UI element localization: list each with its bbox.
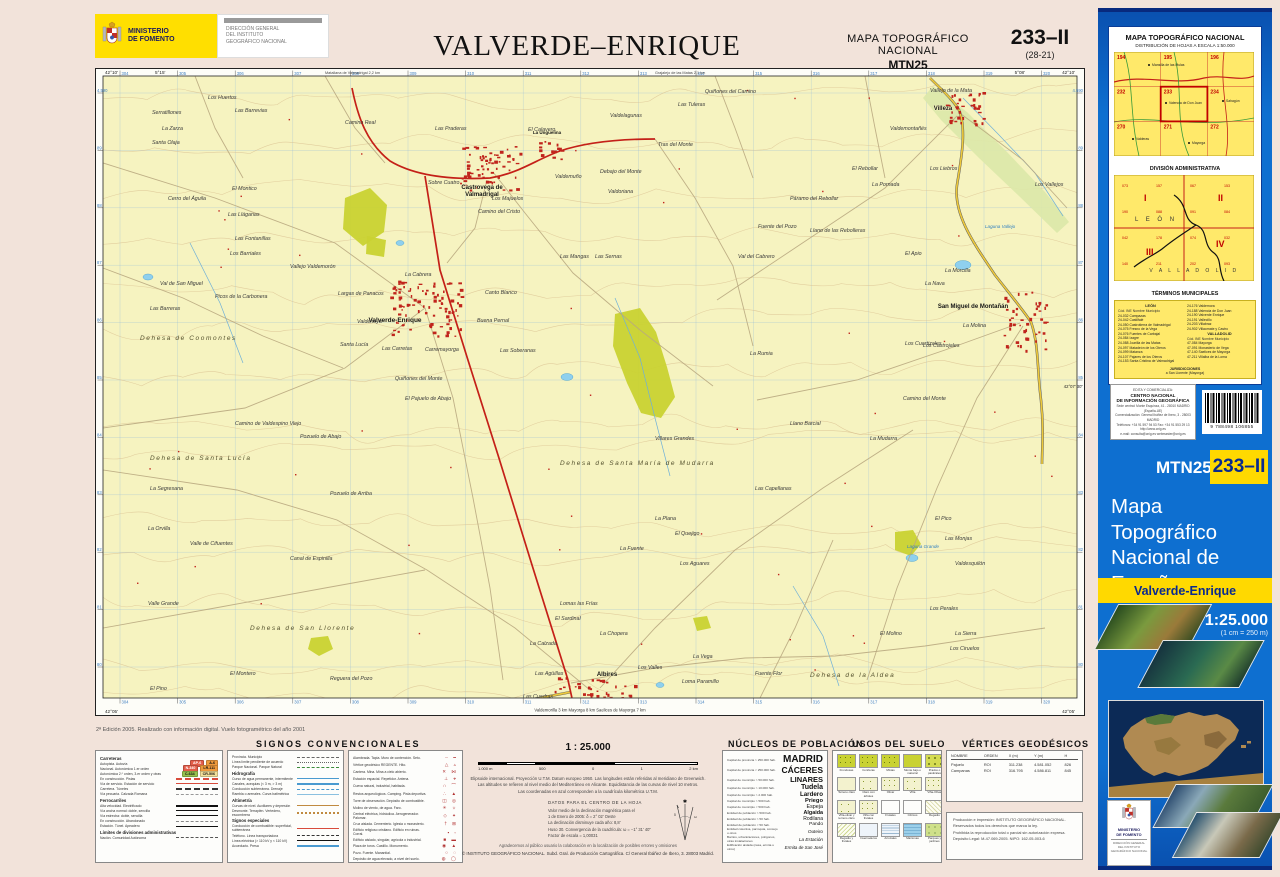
svg-text:V A L L A D O L I D: V A L L A D O L I D bbox=[1149, 268, 1238, 274]
svg-text:La Vega: La Vega bbox=[693, 654, 713, 660]
svg-text:5°08': 5°08' bbox=[1015, 70, 1026, 75]
population-row: Capital de municipio > 10.000 hab.Tudela bbox=[727, 784, 823, 791]
svg-text:Los Liebros: Los Liebros bbox=[930, 166, 958, 172]
svg-text:La Pornada: La Pornada bbox=[872, 182, 899, 188]
legend-header: Límites de divisiones administrativas bbox=[100, 830, 218, 835]
svg-text:088: 088 bbox=[1156, 210, 1162, 214]
svg-text:317: 317 bbox=[870, 71, 878, 76]
svg-text:Dehesa de San Llorente: Dehesa de San Llorente bbox=[250, 625, 355, 632]
municipal-terms-box: LEÓNCód. INE Nombre Municipio24-032 Camp… bbox=[1114, 300, 1256, 379]
svg-text:Dehesa de Coomontes: Dehesa de Coomontes bbox=[140, 335, 237, 342]
sheet-number-block: 233–II (28-21) bbox=[1004, 26, 1076, 60]
svg-text:310: 310 bbox=[467, 71, 475, 76]
svg-text:✱: ✱ bbox=[683, 799, 687, 805]
svg-text:Llano Barcial: Llano Barcial bbox=[790, 421, 821, 427]
svg-text:Los Castrojales: Los Castrojales bbox=[923, 343, 960, 349]
legend-header: Altimetría bbox=[232, 798, 339, 803]
svg-text:Val del Cabrero: Val del Cabrero bbox=[738, 254, 775, 260]
division-title: DIVISIÓN ADMINISTRATIVA bbox=[1114, 166, 1256, 172]
landuse-cell: Frondosas bbox=[837, 754, 856, 775]
landuse-swatch bbox=[903, 777, 922, 791]
landuse-swatch bbox=[859, 800, 878, 814]
legend-row: Vértice geodésico REGENTE. Hito.△ ▵ bbox=[353, 762, 458, 768]
sidebar-panel-title: MAPA TOPOGRÁFICO NACIONAL bbox=[1114, 33, 1256, 42]
svg-text:Quiñones del Monte: Quiñones del Monte bbox=[395, 376, 442, 382]
svg-text:190: 190 bbox=[1122, 210, 1128, 214]
landuse-swatch bbox=[837, 777, 856, 791]
svg-text:Lomas las Frías: Lomas las Frías bbox=[560, 601, 598, 607]
series-title-line: Topográfico bbox=[1111, 520, 1272, 546]
svg-text:320: 320 bbox=[1043, 700, 1051, 705]
population-sample-name: La Estación bbox=[799, 837, 823, 842]
svg-text:Dehesa de la Aldea: Dehesa de la Aldea bbox=[810, 672, 895, 679]
scale-bar-label: 500 bbox=[539, 766, 546, 771]
terminos-title: TÉRMINOS MUNICIPALES bbox=[1114, 291, 1256, 297]
population-row: Edificación aislada (casa, ermita u otro… bbox=[727, 843, 823, 851]
population-sample-name: Tudela bbox=[801, 784, 823, 791]
svg-text:Picos de la Carbonera: Picos de la Carbonera bbox=[215, 294, 267, 300]
landuse-label: Parques y jardines bbox=[925, 837, 942, 843]
svg-text:Los Perales: Los Perales bbox=[930, 606, 958, 612]
sheet-subnumber: (28-21) bbox=[1004, 50, 1076, 60]
svg-text:306: 306 bbox=[237, 71, 245, 76]
svg-text:Las Barreras: Las Barreras bbox=[150, 306, 181, 312]
svg-text:Santa Olaja: Santa Olaja bbox=[152, 140, 180, 146]
svg-text:89: 89 bbox=[1078, 145, 1083, 150]
legend-symbol-icons: ◇ ✦ bbox=[428, 813, 458, 819]
svg-text:233: 233 bbox=[1164, 90, 1173, 96]
municipio-item: Cód. INE Nombre Municipio bbox=[1118, 309, 1183, 313]
dg-ign-bar bbox=[224, 18, 322, 23]
svg-text:074: 074 bbox=[1190, 236, 1196, 240]
legend-row: Canales, acequias (< 3 m, > 3 m) bbox=[232, 782, 339, 786]
svg-text:La Sierra: La Sierra bbox=[955, 631, 977, 637]
legend-row: Provincia. Municipio bbox=[232, 755, 339, 759]
svg-text:Valdoriana: Valdoriana bbox=[608, 189, 633, 195]
svg-text:232: 232 bbox=[1117, 90, 1126, 96]
svg-text:Los Valles: Los Valles bbox=[638, 665, 663, 671]
svg-text:El Pico: El Pico bbox=[935, 516, 952, 522]
scale-bar-label: 1.000 m bbox=[478, 766, 492, 771]
svg-text:307: 307 bbox=[294, 71, 302, 76]
legend-row: Curvas de nivel. Auxiliares y depresión bbox=[232, 804, 339, 808]
svg-text:304: 304 bbox=[122, 700, 130, 705]
svg-text:Páramo del Rebollar: Páramo del Rebollar bbox=[790, 196, 839, 202]
svg-text:Dehesa de Santa María de Mudar: Dehesa de Santa María de Mudarra bbox=[560, 460, 715, 467]
svg-text:Tras del Monte: Tras del Monte bbox=[658, 142, 693, 148]
legend-symbol-icons: ■ ▬ bbox=[428, 837, 458, 842]
svg-text:311: 311 bbox=[525, 71, 532, 76]
svg-text:234: 234 bbox=[1210, 90, 1219, 96]
svg-text:La Zarza: La Zarza bbox=[162, 126, 183, 132]
vertices-cell: 311.238 bbox=[1009, 760, 1034, 767]
svg-text:88: 88 bbox=[1078, 203, 1083, 208]
svg-text:318: 318 bbox=[928, 700, 936, 705]
svg-text:89: 89 bbox=[97, 145, 102, 150]
legend-header: Signos especiales bbox=[232, 818, 339, 823]
svg-text:La Nava: La Nava bbox=[925, 281, 945, 287]
svg-text:Largas de Panacos: Largas de Panacos bbox=[338, 291, 384, 297]
landuse-cell: Marismas bbox=[903, 823, 922, 844]
svg-text:Los Barriales: Los Barriales bbox=[230, 251, 261, 257]
legend-row: Vía ancha normal: doble, sencilla bbox=[100, 809, 218, 813]
series-title-line: Mapa bbox=[1111, 494, 1272, 520]
municipio-item: Cód. INE Nombre Municipio bbox=[1187, 337, 1252, 341]
svg-text:Los Vallejos: Los Vallejos bbox=[1035, 182, 1064, 188]
legend-row: En construcción. Pistas bbox=[100, 777, 218, 781]
landuse-swatch bbox=[881, 823, 900, 837]
svg-text:316: 316 bbox=[813, 71, 821, 76]
landuse-cell: Arrozales bbox=[881, 823, 900, 844]
landuse-label: Coníferas bbox=[859, 769, 878, 772]
sheet-title: VALVERDE–ENRIQUE bbox=[402, 30, 772, 63]
legend-row: Línea eléctrica (> 110 kV y < 110 kV) bbox=[232, 839, 339, 843]
svg-text:83: 83 bbox=[1078, 490, 1083, 495]
svg-text:42°05': 42°05' bbox=[1062, 709, 1075, 714]
legend-symbol-icons: ┄ ━ bbox=[428, 755, 458, 761]
svg-text:ω: ω bbox=[694, 815, 697, 819]
svg-text:42°07' 30'': 42°07' 30'' bbox=[1064, 384, 1083, 389]
ministry-yellow-box: MINISTERIO DE FOMENTO bbox=[95, 14, 217, 58]
landuse-swatch bbox=[837, 800, 856, 814]
svg-text:Los Aguares: Los Aguares bbox=[680, 561, 710, 567]
svg-text:178: 178 bbox=[1156, 236, 1162, 240]
svg-text:Cerro del Águila: Cerro del Águila bbox=[168, 195, 206, 202]
municipio-item: 47-211 Villalba de la Loma bbox=[1187, 355, 1252, 360]
population-sample-name: Outeiro bbox=[808, 829, 823, 834]
population-sample-name: Pando bbox=[809, 822, 823, 827]
legend-row: Cantera. Mina. Mina a cielo abierto.✕ ⋈ bbox=[353, 769, 458, 775]
landuse-label: Monte bajo o matorral bbox=[903, 769, 922, 775]
landuse-cell: Viña con frutales bbox=[859, 800, 878, 821]
svg-text:317: 317 bbox=[870, 700, 878, 705]
landuse-swatch bbox=[925, 777, 942, 791]
landuse-swatch bbox=[837, 754, 856, 768]
svg-text:83: 83 bbox=[97, 490, 102, 495]
svg-text:El Quejigo: El Quejigo bbox=[675, 531, 699, 537]
svg-text:Valle de Cifuentes: Valle de Cifuentes bbox=[190, 541, 233, 547]
svg-text:El Montero: El Montero bbox=[230, 671, 256, 677]
svg-text:Las Carretas: Las Carretas bbox=[382, 346, 413, 352]
svg-text:San Miguel de Montañán: San Miguel de Montañán bbox=[938, 304, 1009, 310]
svg-text:Las Soberanas: Las Soberanas bbox=[500, 348, 536, 354]
topographic-map: Castrovega deValmadrigalLa UnguelinaVill… bbox=[95, 68, 1085, 716]
svg-text:La Orvilla: La Orvilla bbox=[148, 526, 170, 532]
cnig-box: EDITA Y COMERCIALIZA: CENTRO NACIONAL DE… bbox=[1110, 384, 1196, 440]
svg-text:81: 81 bbox=[1078, 605, 1083, 610]
legend-symbol-icons: ◍ ◯ bbox=[428, 856, 458, 862]
svg-text:El Calavero: El Calavero bbox=[528, 127, 555, 133]
svg-text:093: 093 bbox=[1224, 262, 1230, 266]
svg-text:Vallejo Valdemorón: Vallejo Valdemorón bbox=[290, 264, 336, 270]
landuse-cell: Parques y jardines bbox=[925, 823, 942, 844]
landuse-cell: Viña bbox=[903, 777, 922, 798]
svg-text:318: 318 bbox=[928, 71, 936, 76]
svg-text:202: 202 bbox=[1190, 262, 1196, 266]
svg-text:42°10': 42°10' bbox=[1062, 70, 1075, 75]
svg-text:140: 140 bbox=[1122, 262, 1128, 266]
svg-text:La Calzada: La Calzada bbox=[530, 641, 557, 647]
legend-symbol-icons: ◫ ◎ bbox=[428, 798, 458, 804]
svg-text:067: 067 bbox=[1190, 184, 1196, 188]
landuse-swatch bbox=[925, 754, 942, 768]
svg-text:L E Ó N: L E Ó N bbox=[1135, 216, 1177, 223]
spain-coat-of-arms-icon bbox=[101, 21, 123, 52]
svg-text:El Molino: El Molino bbox=[880, 631, 902, 637]
legend-row: Depósito de agua elevado, a nivel del su… bbox=[353, 856, 458, 862]
svg-text:Mansilla de las Mulas: Mansilla de las Mulas bbox=[1152, 63, 1185, 67]
legend-row: Rambla o arenales. Curva batimétrica bbox=[232, 792, 339, 796]
legend-symbol-icons: ✕ ⋈ bbox=[428, 769, 458, 775]
svg-text:Las Mangas: Las Mangas bbox=[560, 254, 589, 260]
svg-text:Los Huertos: Los Huertos bbox=[208, 95, 237, 101]
svg-text:270: 270 bbox=[1117, 124, 1126, 130]
svg-text:211: 211 bbox=[1156, 262, 1162, 266]
legend-row: Conducción de combustible: superficial, … bbox=[232, 824, 339, 832]
vertices-cell: 845 bbox=[1065, 767, 1078, 774]
svg-text:4.590: 4.590 bbox=[97, 88, 108, 93]
sidebar-mtn25: MTN25 bbox=[1156, 458, 1212, 478]
svg-text:Valencia de Don Juan: Valencia de Don Juan bbox=[1169, 101, 1202, 105]
svg-text:320: 320 bbox=[1043, 71, 1051, 76]
population-row: Entidad colectiva, parroquia, concejo u … bbox=[727, 827, 823, 835]
vertices-cell: 826 bbox=[1065, 760, 1078, 767]
landuse-cell: Frutales bbox=[881, 800, 900, 821]
sidebar-sheet-name: Valverde-Enrique bbox=[1098, 578, 1272, 603]
svg-text:Pozuelo de Arriba: Pozuelo de Arriba bbox=[330, 491, 372, 497]
svg-text:Santa Lucía: Santa Lucía bbox=[340, 342, 368, 348]
legend-symbol-icons: ✳ ☼ bbox=[428, 805, 458, 811]
svg-text:80: 80 bbox=[97, 662, 102, 667]
vertices-cell: 4.586.811 bbox=[1034, 767, 1064, 774]
projection-note-line: Las altitudes se refieren al nivel medio… bbox=[448, 782, 728, 788]
svg-text:157: 157 bbox=[1156, 184, 1162, 188]
sidebar-panel-subtitle: DISTRIBUCIÓN DE HOJAS A ESCALA 1:50.000 bbox=[1114, 43, 1256, 48]
svg-text:Debajo del Monte: Debajo del Monte bbox=[600, 169, 642, 175]
legend-row: Alta velocidad. Electrificado bbox=[100, 804, 218, 808]
svg-text:195: 195 bbox=[1164, 55, 1173, 61]
svg-text:Valdelagunas: Valdelagunas bbox=[610, 113, 642, 119]
svg-text:5°15': 5°15' bbox=[155, 70, 166, 75]
legend-row: Edificio religioso cristiano. Edificio e… bbox=[353, 828, 458, 836]
svg-text:196: 196 bbox=[1210, 55, 1219, 61]
landuse-cell: Prados o pastizales bbox=[925, 754, 942, 775]
landuse-label: Viña con frutales bbox=[859, 814, 878, 820]
legend-row: Carretera. Túneles bbox=[100, 787, 218, 791]
population-sample-name: Ermita de San José bbox=[785, 845, 823, 850]
svg-text:Las Agüillas: Las Agüillas bbox=[535, 671, 564, 677]
dg-ign-box: DIRECCIÓN GENERAL DEL INSTITUTO GEOGRÁFI… bbox=[217, 14, 329, 58]
svg-text:315: 315 bbox=[755, 71, 763, 76]
cnig-email: e-mail: consulta@cnig.es webmaster@cnig.… bbox=[1115, 432, 1191, 437]
landuse-swatch bbox=[859, 754, 878, 768]
legend-row: Vía pecuaria. Calzada Romana bbox=[100, 792, 218, 796]
municipio-item: LEÓN bbox=[1118, 304, 1183, 308]
landuse-cell: Olivar bbox=[881, 777, 900, 798]
legend-vertices-box: NOMBREORDENX (m)Y (m)HPajueloROI311.2384… bbox=[946, 750, 1083, 802]
series-name: MAPA TOPOGRÁFICO NACIONAL bbox=[822, 33, 994, 57]
svg-text:Serratillones: Serratillones bbox=[152, 110, 182, 116]
ministry-name: MINISTERIO DE FOMENTO bbox=[128, 28, 175, 44]
svg-text:305: 305 bbox=[179, 71, 187, 76]
edition-note: 2ª Edición 2005. Realizado con informaci… bbox=[96, 727, 305, 733]
barcode-number: 9 788498 106855 bbox=[1205, 424, 1259, 429]
svg-text:87: 87 bbox=[1078, 260, 1083, 265]
legend-header: Hidrografía bbox=[232, 771, 339, 776]
legend-row: Cruz aislada. Cementerio. Iglesia o mona… bbox=[353, 821, 458, 827]
production-line: Depósito Legal: M-47.069-2005. NIPO: 162… bbox=[953, 836, 1076, 842]
ign-copyright: © INSTITUTO GEOGRÁFICO NACIONAL. Subd. G… bbox=[440, 851, 736, 856]
svg-text:La Mudarra: La Mudarra bbox=[870, 436, 897, 442]
svg-text:Reguera del Pozo: Reguera del Pozo bbox=[330, 676, 372, 682]
declination-diagram: ✱ δ ω bbox=[668, 798, 702, 844]
legend-row: Desmonte. Terraplén. Vertedero, escombre… bbox=[232, 809, 339, 817]
svg-text:84: 84 bbox=[97, 432, 102, 437]
svg-text:85: 85 bbox=[97, 375, 102, 380]
legend-row: En construcción. Abandonado bbox=[100, 819, 218, 823]
landuse-swatch bbox=[881, 800, 900, 814]
landuse-label: Regadío bbox=[925, 814, 942, 817]
vertices-cell: 4.581.052 bbox=[1034, 760, 1064, 767]
svg-text:315: 315 bbox=[755, 700, 763, 705]
landuse-label: Invernaderos bbox=[859, 837, 878, 840]
legend-population-box: Capital de provincia > 250.000 hab.MADRI… bbox=[722, 750, 828, 863]
legend-row: Vía de servicio. Estación de servicio bbox=[100, 782, 218, 786]
svg-text:313: 313 bbox=[640, 700, 648, 705]
legend-row: Plaza de toros. Castillo. Monumento.◉ ▲ bbox=[353, 843, 458, 849]
svg-text:82: 82 bbox=[97, 547, 102, 552]
landuse-swatch bbox=[925, 823, 942, 837]
landuse-label: Regadío y frutales bbox=[837, 837, 856, 843]
svg-text:306: 306 bbox=[237, 700, 245, 705]
svg-text:194: 194 bbox=[1117, 55, 1126, 61]
landuse-cell: Regadío bbox=[925, 800, 942, 821]
svg-text:310: 310 bbox=[467, 700, 475, 705]
svg-text:La Molina: La Molina bbox=[963, 323, 986, 329]
legend-row: Edificio aislado, singular, agrícola o i… bbox=[353, 837, 458, 842]
svg-text:Val de San Miguel: Val de San Miguel bbox=[160, 281, 204, 287]
legend-row: Torre de observación. Depósito de combus… bbox=[353, 798, 458, 804]
landuse-cell: Claro con árboles bbox=[859, 777, 878, 798]
scale-title: 1 : 25.000 bbox=[468, 742, 708, 753]
svg-text:312: 312 bbox=[582, 700, 590, 705]
svg-text:Las Fontanillas: Las Fontanillas bbox=[235, 236, 271, 242]
svg-text:La Rumia: La Rumia bbox=[750, 351, 773, 357]
sheet-center-data: DATOS PARA EL CENTRO DE LA HOJA Valor me… bbox=[548, 800, 666, 839]
svg-text:Albires: Albires bbox=[597, 672, 618, 678]
population-sample-name: Lardero bbox=[800, 791, 823, 798]
landuse-swatch bbox=[837, 823, 856, 837]
svg-text:308: 308 bbox=[352, 700, 360, 705]
svg-text:El Apio: El Apio bbox=[905, 251, 922, 257]
legend-row: Vía estrecha: doble, sencilla bbox=[100, 814, 218, 818]
sheet-number: 233–II bbox=[1004, 26, 1076, 50]
cnig-line: Sede central: Monte Esquinza, 41 - 28010… bbox=[1115, 404, 1191, 413]
cnig-line: Comercialización: General Ibáñez de Iber… bbox=[1115, 413, 1191, 422]
landuse-cell: Terreno claro bbox=[837, 777, 856, 798]
legend-row: Estación. Túnel. Apeadero bbox=[100, 824, 218, 828]
landuse-swatch bbox=[903, 754, 922, 768]
legend-row: Central eléctrica, hidráulica. Aerogener… bbox=[353, 812, 458, 820]
vertices-cell: Campanas bbox=[951, 767, 984, 774]
landuse-cell: Regadío y frutales bbox=[837, 823, 856, 844]
landuse-label: Olivar bbox=[881, 791, 900, 794]
legend-row: Alambrada. Tapia. Muro de contención. Se… bbox=[353, 755, 458, 761]
legend-roads-box: CarreterasAutopista. AutovíaAP-6A-6Nacio… bbox=[95, 750, 223, 863]
svg-text:87: 87 bbox=[97, 260, 102, 265]
svg-text:Carremayorga: Carremayorga bbox=[425, 347, 459, 353]
svg-text:Camino de Valdespino Viejo: Camino de Valdespino Viejo bbox=[235, 421, 301, 427]
svg-text:Villares Grandes: Villares Grandes bbox=[655, 436, 694, 442]
legend-row: Curso de agua permanente, intermitente bbox=[232, 777, 339, 781]
svg-text:Valdehoya: Valdehoya bbox=[357, 319, 382, 325]
landuse-swatch bbox=[881, 754, 900, 768]
svg-text:84: 84 bbox=[1078, 432, 1083, 437]
svg-text:80: 80 bbox=[1078, 662, 1083, 667]
landuse-label: Frondosas bbox=[837, 769, 856, 772]
projection-notes: Elipsoide internacional. Proyección U.T.… bbox=[448, 776, 728, 795]
svg-text:084: 084 bbox=[1224, 210, 1230, 214]
landuse-swatch bbox=[859, 777, 878, 791]
scale-bar-label: 0 bbox=[592, 766, 594, 771]
legend-symbol-icons: † ⊞ bbox=[428, 821, 458, 827]
svg-text:δ: δ bbox=[674, 813, 676, 817]
legend-symbol-icons: △ ▵ bbox=[428, 762, 458, 768]
svg-text:Los Majuelos: Los Majuelos bbox=[492, 196, 524, 202]
svg-text:88: 88 bbox=[97, 203, 102, 208]
population-sample-name: MADRID bbox=[783, 754, 823, 765]
svg-text:Camino Real: Camino Real bbox=[345, 120, 376, 126]
svg-text:314: 314 bbox=[698, 700, 706, 705]
sheet-center-data-title: DATOS PARA EL CENTRO DE LA HOJA bbox=[548, 800, 666, 807]
svg-text:Sahagún: Sahagún bbox=[1226, 99, 1240, 103]
landuse-label: Marismas bbox=[903, 837, 922, 840]
svg-text:Quiñones del Camino: Quiñones del Camino bbox=[705, 89, 756, 95]
landuse-cell: Mixtas bbox=[881, 754, 900, 775]
svg-text:Dehesa de Santa Lucía: Dehesa de Santa Lucía bbox=[150, 455, 252, 462]
cnig-name: CENTRO NACIONAL DE INFORMACIÓN GEOGRÁFIC… bbox=[1115, 393, 1191, 404]
svg-text:Canal de Espinilla: Canal de Espinilla bbox=[290, 556, 332, 562]
legend-row: Nación. Comunidad Autónoma bbox=[100, 836, 218, 840]
legend-symbols-box: Alambrada. Tapia. Muro de contención. Se… bbox=[348, 750, 463, 863]
svg-text:032: 032 bbox=[1224, 236, 1230, 240]
svg-text:Grajalejo de las Matas 2,1 km: Grajalejo de las Matas 2,1 km bbox=[655, 71, 705, 75]
errors-note: Agradecemos al público usuario la colabo… bbox=[448, 843, 728, 848]
svg-text:304: 304 bbox=[122, 71, 130, 76]
vertices-cell: Pajuelo bbox=[951, 760, 984, 767]
legend-row: Molino de viento, de agua. Faro.✳ ☼ bbox=[353, 805, 458, 811]
landuse-label: Terreno claro bbox=[837, 791, 856, 794]
svg-text:309: 309 bbox=[410, 700, 418, 705]
landuse-label: Arrozales bbox=[881, 837, 900, 840]
scale-bar-label: 2 km bbox=[689, 766, 698, 771]
spain-coat-of-arms-icon bbox=[1121, 809, 1137, 826]
sheet-index-map: 194195196232233234270271272Mansilla de l… bbox=[1114, 52, 1254, 156]
landuse-cell: Cítricos bbox=[903, 800, 922, 821]
svg-text:Matallana de Valmadrigal 2,2 k: Matallana de Valmadrigal 2,2 km bbox=[325, 71, 380, 75]
svg-text:Llano de las Rebolleras: Llano de las Rebolleras bbox=[810, 228, 866, 234]
legend-hydro-box: Provincia. MunicipioLínea límite pendien… bbox=[227, 750, 344, 863]
svg-text:81: 81 bbox=[97, 605, 102, 610]
svg-text:I: I bbox=[1144, 193, 1147, 203]
nucleos-title: NÚCLEOS DE POBLACIÓN bbox=[728, 739, 864, 749]
svg-text:Laguna Grande: Laguna Grande bbox=[907, 544, 939, 549]
svg-text:Valdesquilón: Valdesquilón bbox=[955, 561, 985, 567]
landuse-swatch bbox=[903, 823, 922, 837]
svg-text:Valle Grande: Valle Grande bbox=[148, 601, 179, 607]
svg-text:Mayorga: Mayorga bbox=[1192, 141, 1205, 145]
svg-text:4.590: 4.590 bbox=[1073, 88, 1084, 93]
